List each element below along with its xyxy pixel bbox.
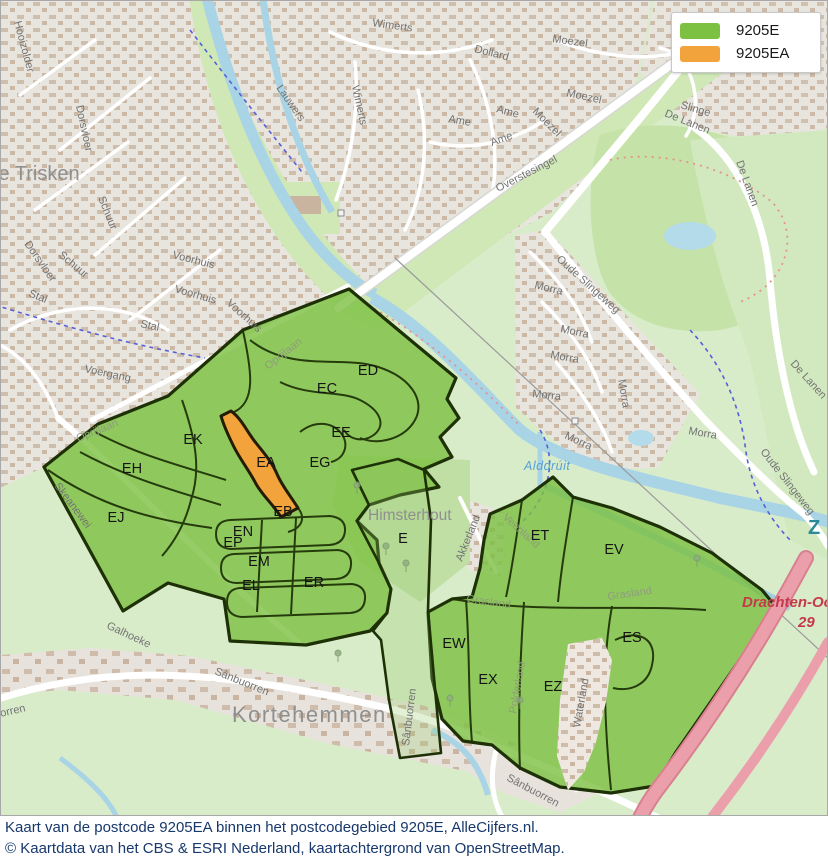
water-label-alddruit: Alddrúit: [523, 459, 570, 473]
map-svg: Hooizolder Slinge Slinge Wimerts Wimerts…: [0, 0, 828, 816]
region-label-ex: EX: [478, 672, 498, 688]
map-legend: 9205E 9205EA: [671, 12, 821, 73]
caption-line-1: Kaart van de postcode 9205EA binnen het …: [5, 817, 828, 838]
motorway-exit-label: 29: [797, 614, 815, 631]
legend-row-9205e: 9205E: [680, 19, 812, 42]
place-label-z-partial: Z: [808, 517, 820, 539]
legend-swatch-9205e: [680, 23, 720, 39]
region-label-ec: EC: [317, 381, 337, 397]
region-label-el: EL: [242, 578, 260, 594]
place-label-de-trisken: De Trisken: [0, 163, 80, 185]
region-label-ej: EJ: [108, 510, 125, 526]
postcode-map-page: Hooizolder Slinge Slinge Wimerts Wimerts…: [0, 0, 828, 861]
region-label-ed: ED: [358, 363, 378, 379]
legend-row-9205ea: 9205EA: [680, 42, 812, 65]
caption-line-2: © Kaartdata van het CBS & ESRI Nederland…: [5, 838, 828, 859]
place-label-kortehemmen: Kortehemmen: [232, 702, 387, 727]
region-label-e: E: [398, 531, 408, 547]
region-label-ep: EP: [223, 535, 242, 551]
legend-label-9205ea: 9205EA: [736, 45, 789, 62]
region-label-ek: EK: [183, 432, 203, 448]
region-label-eb: EB: [273, 504, 292, 520]
region-label-ew: EW: [442, 636, 466, 652]
region-label-ev: EV: [604, 542, 624, 558]
map-caption: Kaart van de postcode 9205EA binnen het …: [0, 816, 828, 861]
region-label-ee: EE: [331, 425, 351, 441]
region-label-et: ET: [531, 528, 550, 544]
region-label-eh: EH: [122, 461, 142, 477]
map-canvas[interactable]: Hooizolder Slinge Slinge Wimerts Wimerts…: [0, 0, 828, 816]
region-label-es: ES: [622, 630, 641, 646]
legend-swatch-9205ea: [680, 46, 720, 62]
legend-label-9205e: 9205E: [736, 22, 779, 39]
region-label-er: ER: [304, 575, 324, 591]
motorway-name-label: Drachten-Oost: [742, 594, 828, 611]
place-label-himsterhout: Himsterhout: [368, 507, 452, 524]
region-label-ez: EZ: [544, 679, 563, 695]
region-label-eg: EG: [310, 455, 331, 471]
region-label-em: EM: [248, 554, 270, 570]
region-label-ea: EA: [256, 455, 276, 471]
